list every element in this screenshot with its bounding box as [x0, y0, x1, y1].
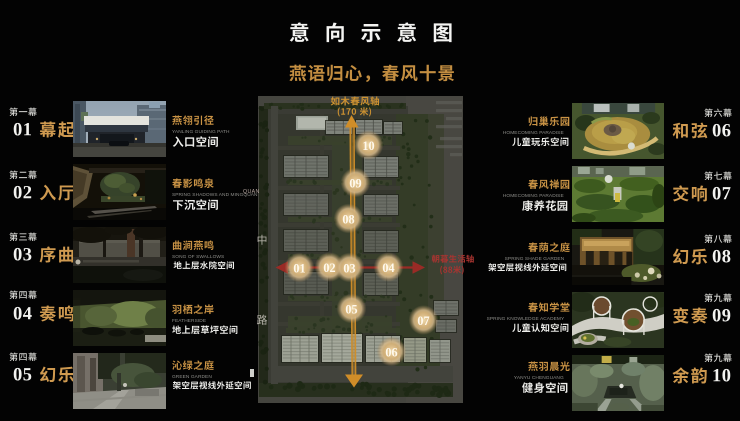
- svg-text:08: 08: [342, 212, 354, 226]
- svg-text:02: 02: [323, 261, 335, 275]
- svg-text:01: 01: [293, 261, 305, 275]
- svg-text:10: 10: [362, 139, 374, 153]
- svg-text:05: 05: [345, 302, 357, 316]
- svg-text:03: 03: [343, 261, 355, 275]
- svg-text:07: 07: [417, 314, 429, 328]
- svg-text:04: 04: [382, 261, 394, 275]
- svg-text:09: 09: [349, 176, 361, 190]
- svg-text:06: 06: [385, 345, 397, 359]
